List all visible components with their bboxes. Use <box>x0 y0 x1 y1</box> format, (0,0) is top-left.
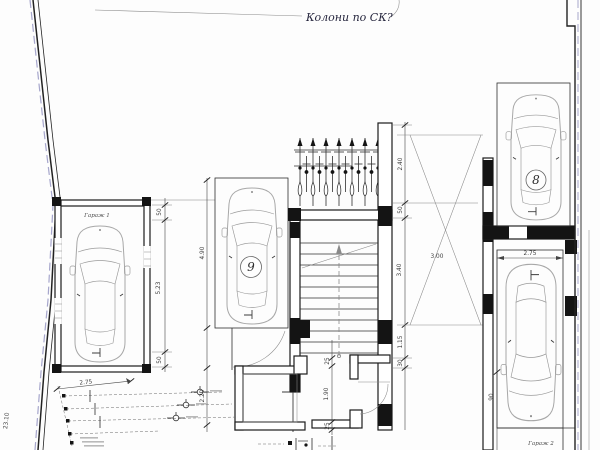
fence-symbols-group <box>294 138 386 206</box>
garage1-label: Гараж 1 <box>83 213 110 219</box>
garage1-group: Гараж 1 <box>52 197 215 373</box>
lamp-icon <box>167 412 185 421</box>
car-spot9-icon <box>222 188 282 324</box>
spot8-number: 8 <box>532 173 540 187</box>
spot9-door-arc-icon <box>233 331 285 367</box>
dim-text-spot2-width: 2.75 <box>524 251 537 257</box>
dim-plot-width: 2.75 <box>54 378 134 392</box>
garage2-label: Гараж 2 <box>527 441 554 447</box>
dim-text-right-1: 2.40 <box>398 157 404 170</box>
car-garage1-icon <box>70 226 130 362</box>
plan-drawing: 23.10 Колони по СК? Гараж 1 <box>0 0 600 450</box>
dim-text-left-main: 5.23 <box>156 281 162 294</box>
dim-text-room-main: 1.90 <box>324 387 330 400</box>
dim-text-right-2: 50 <box>398 206 404 214</box>
spot8-group: 8 <box>497 83 570 226</box>
dim-text-cross: 3.00 <box>431 254 444 260</box>
car-garage2-icon <box>501 264 561 420</box>
dim-chain-middle: 4.90 2.20 <box>200 177 210 432</box>
void-cross-group: 3.00 <box>397 135 483 325</box>
dim-text-spot2-side: 90 <box>489 393 495 401</box>
garage2-group: 2.75 90 Гараж 2 <box>489 250 575 450</box>
dim-chain-right: 2.40 50 3.40 1.15 30 <box>392 122 478 430</box>
spot9-group: 9 <box>215 178 288 370</box>
staircase-group <box>282 123 392 432</box>
dim-text-right-3: 3.40 <box>397 263 403 276</box>
annotation-group: Колони по СК? <box>95 0 399 24</box>
car-spot8-icon <box>506 95 566 220</box>
lamp-icon <box>177 399 195 408</box>
dim-spot2-width: 2.75 <box>497 251 563 260</box>
dim-text-middle-length: 4.90 <box>200 246 206 259</box>
room-group: 25 1.90 25 <box>235 340 390 435</box>
dim-text-right-4: 1.15 <box>398 335 404 348</box>
bottom-symbols-group <box>258 436 338 450</box>
annotation-leader-line <box>95 10 302 16</box>
dim-text-left-top: 50 <box>157 208 163 216</box>
boundary-accent-line <box>30 0 53 450</box>
dim-text-room-bottom: 25 <box>325 422 331 430</box>
annotation-text: Колони по СК? <box>305 11 393 24</box>
dim-text-boundary-length: 23.10 <box>3 412 11 429</box>
electrical-symbols-group <box>58 386 238 447</box>
dim-text-left-bottom: 50 <box>157 356 163 364</box>
stair-walk-line <box>336 244 342 358</box>
cad-drawing-canvas: 23.10 Колони по СК? Гараж 1 <box>0 0 600 450</box>
spot9-number: 9 <box>247 260 255 274</box>
dim-chain-left: 50 5.23 50 <box>152 198 172 372</box>
dim-text-right-5: 30 <box>398 359 404 367</box>
dim-text-room-top: 25 <box>325 357 331 365</box>
garage2-rect <box>497 250 563 428</box>
